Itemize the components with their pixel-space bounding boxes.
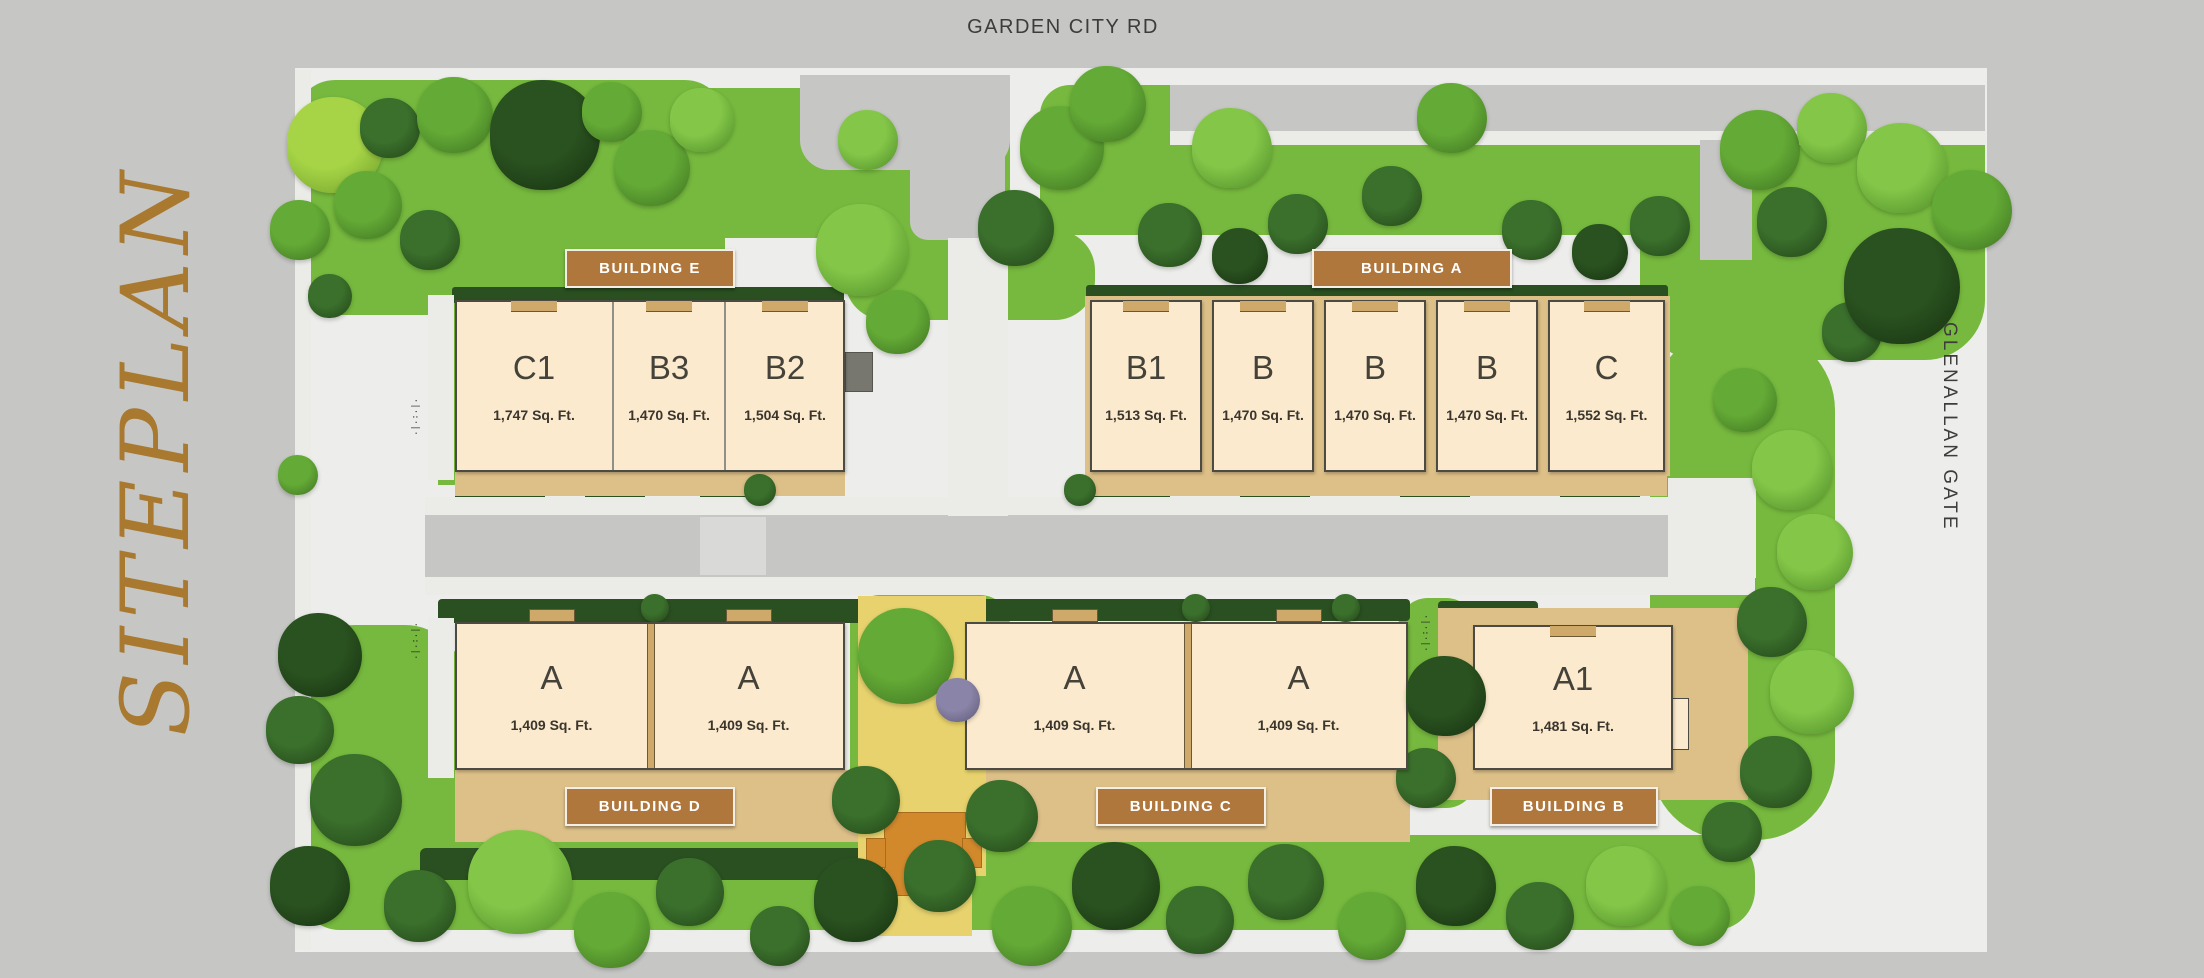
unit-label: B1 [1126,351,1166,384]
tree [1192,108,1272,188]
tree [1932,170,2012,250]
tree [1362,166,1422,226]
driveway-apron [455,470,845,496]
tree [574,892,650,968]
tree [417,77,493,153]
tree [270,846,350,926]
unit-sqft: 1,409 Sq. Ft. [511,718,593,732]
tree [838,110,898,170]
unit-label: B2 [765,351,805,384]
unit-sqft: 1,409 Sq. Ft. [1258,718,1340,732]
building-a-badge: BUILDING A [1312,249,1512,288]
unit-label: A1 [1553,662,1593,695]
tree [1777,514,1853,590]
tree [360,98,420,158]
tree [641,594,669,622]
unit-label: B [1252,351,1274,384]
porch-notch [1276,609,1322,622]
unit-B: B1,470 Sq. Ft. [1212,300,1314,472]
road [700,517,766,575]
porch-notch [1052,609,1098,622]
tree [1212,228,1268,284]
tree [1064,474,1096,506]
tree [1740,736,1812,808]
tree [334,171,402,239]
tree [1752,430,1832,510]
unit-label: C1 [513,351,555,384]
tree [1417,83,1487,153]
unit-A: A1,409 Sq. Ft. [652,622,845,770]
porch-notch [726,609,772,622]
tree [1720,110,1800,190]
tree [1737,587,1807,657]
tree [1268,194,1328,254]
tree [1138,203,1202,267]
tree [814,858,898,942]
tree [992,886,1072,966]
unit-sqft: 1,504 Sq. Ft. [744,408,826,422]
tree [490,80,600,190]
tree [832,766,900,834]
sidewalk [428,295,454,480]
unit-sqft: 1,470 Sq. Ft. [1446,408,1528,422]
unit-label: B [1476,351,1498,384]
driveway-apron [845,352,873,392]
tree [266,696,334,764]
unit-C1: C11,747 Sq. Ft. [455,300,613,472]
unit-A: A1,409 Sq. Ft. [965,622,1184,770]
road [425,515,1755,577]
tree [1702,802,1762,862]
tree [1630,196,1690,256]
unit-B3: B31,470 Sq. Ft. [613,300,725,472]
tree [866,290,930,354]
tree [750,906,810,966]
tree [384,870,456,942]
tree [656,858,724,926]
building-c-badge: BUILDING C [1096,787,1266,826]
tree [468,830,572,934]
unit-label: C [1595,351,1619,384]
tree [1770,650,1854,734]
tree [1338,892,1406,960]
unit-label: A [1287,661,1309,694]
tree [966,780,1038,852]
unit-B: B1,470 Sq. Ft. [1324,300,1426,472]
unit-label: B [1364,351,1386,384]
unit-B2: B21,504 Sq. Ft. [725,300,845,472]
unit-sqft: 1,470 Sq. Ft. [1222,408,1304,422]
sidewalk [1668,478,1756,578]
glenallan-gate-label: GLENALLAN GATE [1938,322,1960,532]
tree [1072,842,1160,930]
tree [310,754,402,846]
tree [1070,66,1146,142]
dimension-mark: ·|·:·|· [410,622,419,692]
unit-label: A [540,661,562,694]
tree [1757,187,1827,257]
porch-notch [529,609,575,622]
tree [278,455,318,495]
tree [904,840,976,912]
siteplan-page: C11,747 Sq. Ft.B31,470 Sq. Ft.B21,504 Sq… [0,0,2204,978]
unit-label: A [737,661,759,694]
unit-C: C1,552 Sq. Ft. [1548,300,1665,472]
siteplan-map: C11,747 Sq. Ft.B31,470 Sq. Ft.B21,504 Sq… [0,0,2204,978]
tree [278,613,362,697]
tree [936,678,980,722]
unit-label: B3 [649,351,689,384]
building-e-badge: BUILDING E [565,249,735,288]
unit-B1: B11,513 Sq. Ft. [1090,300,1202,472]
driveway-apron [1671,698,1689,750]
unit-sqft: 1,470 Sq. Ft. [628,408,710,422]
tree [1506,882,1574,950]
unit-sqft: 1,481 Sq. Ft. [1532,719,1614,733]
unit-sqft: 1,513 Sq. Ft. [1105,408,1187,422]
tree [400,210,460,270]
unit-label: A [1063,661,1085,694]
tree [1797,93,1867,163]
sidewalk [948,238,1008,516]
unit-A: A1,409 Sq. Ft. [1189,622,1408,770]
tree [1406,656,1486,736]
dimension-mark: ·|·:·|· [410,398,419,468]
tree [1248,844,1324,920]
unit-A: A1,409 Sq. Ft. [455,622,648,770]
sidewalk [428,618,454,778]
tree [816,204,908,296]
tree [1182,594,1210,622]
unit-A1: A11,481 Sq. Ft. [1473,625,1673,770]
tree [1572,224,1628,280]
tree [744,474,776,506]
tree [1713,368,1777,432]
unit-sqft: 1,552 Sq. Ft. [1566,408,1648,422]
unit-sqft: 1,470 Sq. Ft. [1334,408,1416,422]
sidewalk [425,577,1755,595]
tree [1670,886,1730,946]
tree [270,200,330,260]
tree [1166,886,1234,954]
unit-B: B1,470 Sq. Ft. [1436,300,1538,472]
tree [978,190,1054,266]
tree [1416,846,1496,926]
tree [670,88,734,152]
siteplan-title: SITEPLAN [109,130,205,770]
unit-sqft: 1,747 Sq. Ft. [493,408,575,422]
garden-city-rd-label: GARDEN CITY RD [913,16,1213,39]
tree [308,274,352,318]
unit-sqft: 1,409 Sq. Ft. [708,718,790,732]
building-b-badge: BUILDING B [1490,787,1658,826]
tree [1332,594,1360,622]
unit-sqft: 1,409 Sq. Ft. [1034,718,1116,732]
tree [1586,846,1666,926]
building-d-badge: BUILDING D [565,787,735,826]
